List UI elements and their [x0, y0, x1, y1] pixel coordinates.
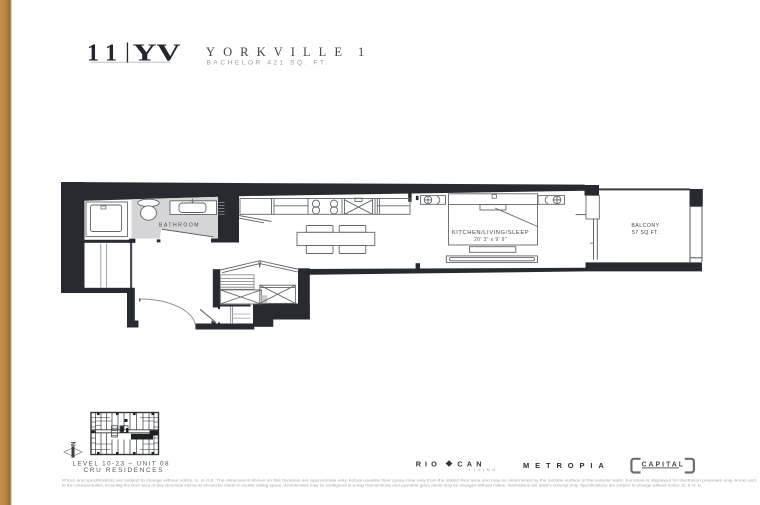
svg-text:KITCHEN/LIVING/SLEEP: KITCHEN/LIVING/SLEEP — [452, 230, 529, 236]
svg-text:LIVING: LIVING — [469, 467, 498, 472]
svg-text:YORKVILLE: YORKVILLE — [206, 45, 342, 59]
svg-text:METROPIA: METROPIA — [523, 461, 607, 470]
svg-text:BALCONY: BALCONY — [631, 223, 659, 229]
svg-text:N: N — [70, 441, 77, 446]
svg-text:in the unusual suites, includi: in the unusual suites, including the flo… — [62, 483, 702, 487]
svg-text:RIO: RIO — [416, 459, 441, 468]
svg-text:BATHROOM: BATHROOM — [159, 223, 200, 229]
svg-text:20' 3" x 9' 9": 20' 3" x 9' 9" — [474, 237, 507, 243]
svg-text:57 SQ.FT.: 57 SQ.FT. — [632, 230, 659, 236]
svg-text:1: 1 — [358, 45, 364, 59]
svg-text:BACHELOR 421 SQ. FT.: BACHELOR 421 SQ. FT. — [207, 60, 328, 67]
svg-text:Prices and specifications are: Prices and specifications are subject to… — [62, 479, 756, 483]
